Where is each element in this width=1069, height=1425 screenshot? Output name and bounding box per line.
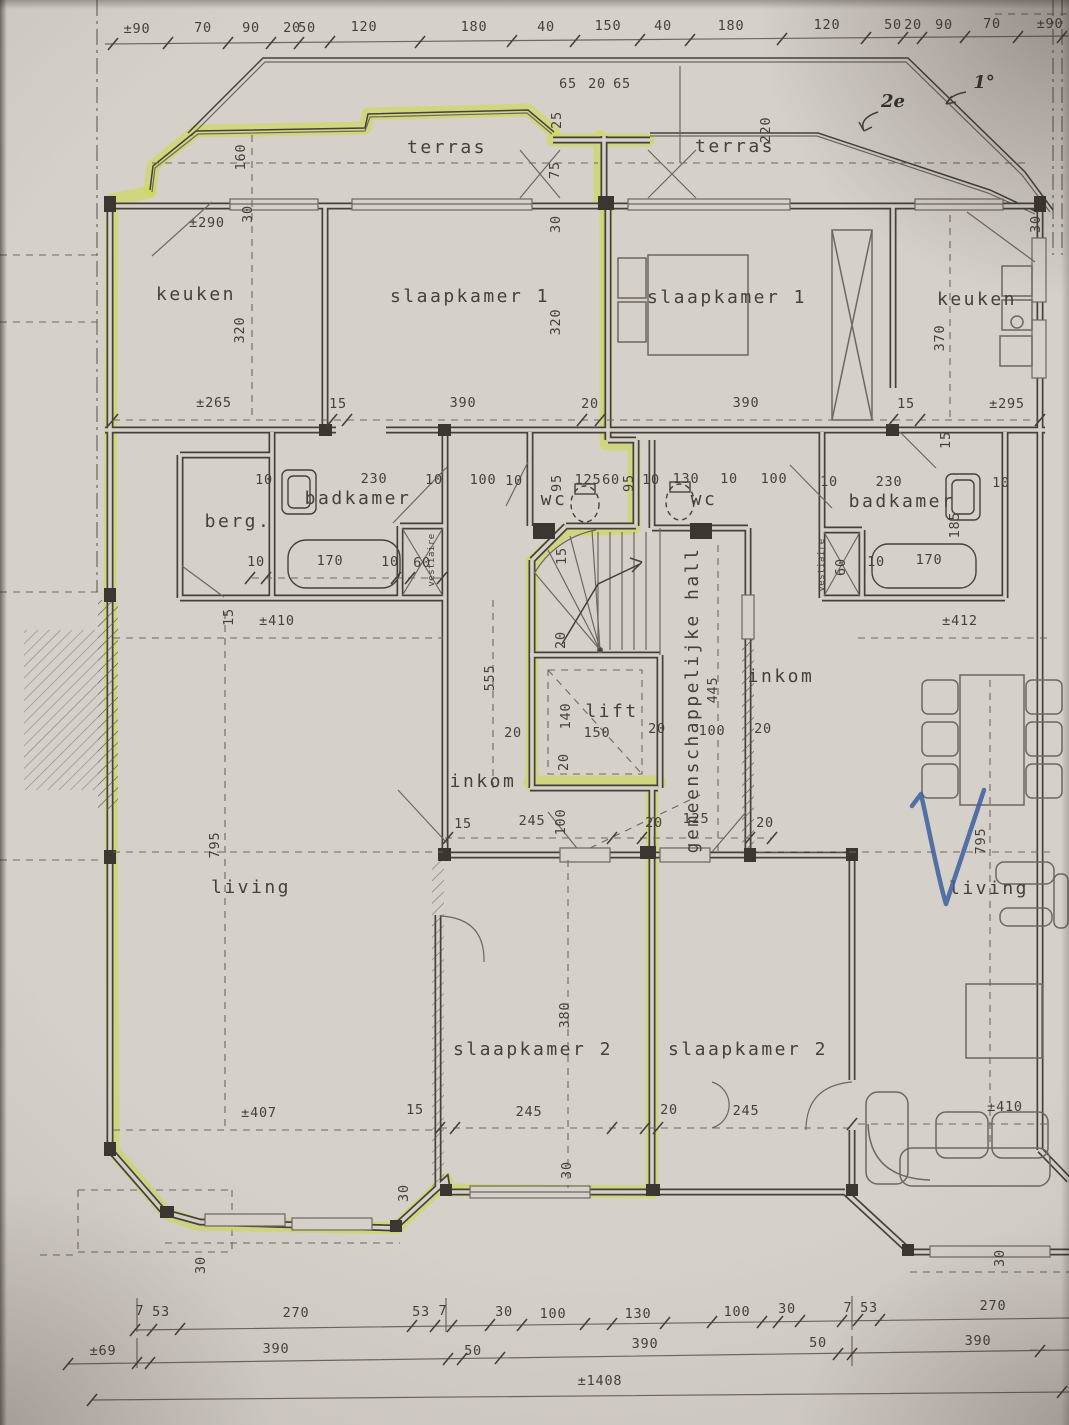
bottom-ruler-value: 130 (625, 1306, 652, 1322)
dimension-label: 390 (733, 395, 760, 411)
top-ruler-value: 90 (935, 17, 953, 33)
dimension-label: 30 (396, 1184, 412, 1202)
bottom-ruler-value: 30 (778, 1301, 796, 1317)
dimension-label: 795 (973, 828, 989, 855)
room-label: badkamer (849, 491, 956, 512)
scanned-floor-plan-photo: terrasterraskeukenslaapkamer 1slaapkamer… (0, 0, 1069, 1425)
room-label: slaapkamer 2 (668, 1039, 828, 1060)
dimension-label: 10 (425, 472, 443, 488)
dimension-label: 60 (833, 558, 849, 576)
room-label: vestiaire (817, 538, 827, 591)
coffee-table (966, 984, 1042, 1058)
top-ruler-value: ±90 (124, 21, 151, 37)
dimension-label: 60 (413, 555, 431, 571)
dimension-label: 65 (559, 76, 577, 92)
dimension-label: 15 (554, 547, 570, 565)
dimension-label: 30 (1028, 215, 1044, 233)
room-label: slaapkamer 1 (390, 286, 550, 307)
dimension-label: 20 (581, 396, 599, 412)
dimension-label: 15 (329, 396, 347, 412)
dimension-label: 30 (559, 1161, 575, 1179)
dimension-label: 10 (720, 471, 738, 487)
top-ruler-value: 180 (718, 18, 745, 34)
dimension-label: 20 (588, 76, 606, 92)
dimension-label: 15 (938, 431, 954, 449)
wardrobe (832, 230, 872, 420)
dimension-label: 320 (232, 317, 248, 344)
wall-piers (104, 196, 1046, 1256)
dimension-label: 10 (867, 554, 885, 570)
dimension-label: 15 (454, 816, 472, 832)
room-label: gemeenschappelijke hall (682, 547, 703, 854)
top-ruler-layer: ±9070902050120180401504018012050209070±9… (124, 16, 1064, 37)
dimension-label: 320 (548, 309, 564, 336)
top-ruler-value: 20 (904, 17, 922, 33)
top-ruler-value: 70 (194, 20, 212, 36)
top-ruler-value: 180 (461, 19, 488, 35)
dimension-label: 10 (820, 474, 838, 490)
room-label: berg. (205, 511, 272, 532)
top-ruler-value: 90 (242, 20, 260, 36)
dimension-labels-layer: 6520652575160220±290320303203037030±2651… (189, 76, 1044, 1274)
room-label: keuken (156, 284, 236, 305)
staircase (534, 528, 700, 848)
kitchen-counter (1000, 266, 1032, 366)
top-ruler-value: 40 (537, 19, 555, 35)
dimension-label: ±412 (942, 613, 978, 629)
bottom-ruler-value: 390 (632, 1336, 659, 1352)
dimension-label: 15 (221, 608, 237, 626)
top-ruler-value: 120 (814, 17, 841, 33)
dimension-label: 390 (450, 395, 477, 411)
dimension-label: 230 (361, 471, 388, 487)
dimension-label: 30 (240, 205, 256, 223)
dimension-label: 125 (575, 472, 602, 488)
dimension-label: 30 (992, 1249, 1008, 1267)
dimension-label: 30 (548, 215, 564, 233)
dimension-label: 20 (504, 725, 522, 741)
room-label: keuken (937, 289, 1017, 310)
dimension-label: 100 (761, 471, 788, 487)
dimension-label: 25 (549, 111, 565, 129)
dimension-label: 75 (547, 161, 563, 179)
bottom-ruler-layer: 7532705373010013010030753270±69390503905… (90, 1298, 1007, 1389)
dimension-label: 10 (255, 472, 273, 488)
dimension-label: 95 (621, 474, 637, 492)
dimension-label: ±410 (259, 613, 295, 629)
dimension-label: 15 (897, 396, 915, 412)
dimension-label: 30 (193, 1256, 209, 1274)
dimension-label: 170 (317, 553, 344, 569)
dimension-label: 10 (381, 554, 399, 570)
dimension-label: 150 (584, 725, 611, 741)
bottom-ruler-value: ±1408 (578, 1373, 623, 1389)
dimension-label: 20 (556, 753, 572, 771)
bottom-ruler-value: 53 (412, 1304, 430, 1320)
room-label: inkom (450, 771, 517, 792)
top-ruler-value: 120 (351, 19, 378, 35)
dimension-label: 220 (758, 117, 774, 144)
dimension-label: 15 (406, 1102, 424, 1118)
dimension-label: ±290 (189, 215, 225, 231)
bottom-ruler-value: 53 (152, 1304, 170, 1320)
room-label: terras (407, 137, 487, 158)
bottom-ruler-value: 30 (495, 1304, 513, 1320)
dimension-label: ±410 (987, 1099, 1023, 1115)
dimension-label: 20 (553, 631, 569, 649)
dimension-label: 10 (642, 472, 660, 488)
walls (105, 136, 1069, 1252)
dimension-label: 20 (648, 721, 666, 737)
dimension-label: 20 (756, 815, 774, 831)
room-label: slaapkamer 1 (647, 287, 807, 308)
room-label: living (211, 877, 291, 898)
dimension-label: 170 (916, 552, 943, 568)
top-ruler-value: 50 (298, 20, 316, 36)
handwritten-floor-note: 1° (973, 72, 995, 93)
dimension-label: 20 (660, 1102, 678, 1118)
dimension-label: 230 (876, 474, 903, 490)
dimension-label: 245 (516, 1104, 543, 1120)
dimension-label: 20 (754, 721, 772, 737)
dimension-label: 370 (932, 325, 948, 352)
bottom-ruler-value: 53 (860, 1300, 878, 1316)
dimension-label: 445 (705, 677, 721, 704)
room-label: inkom (748, 666, 815, 687)
room-label: slaapkamer 2 (453, 1039, 613, 1060)
room-label: living (949, 878, 1029, 899)
top-ruler-value: 50 (884, 17, 902, 33)
bottom-ruler-value: ±69 (90, 1343, 117, 1359)
door-swings (152, 202, 1035, 1130)
room-label: badkamer (305, 488, 412, 509)
dimension-label: 555 (482, 665, 498, 692)
dimension-label: 100 (470, 472, 497, 488)
bottom-ruler-value: 390 (263, 1341, 290, 1357)
bottom-ruler-value: 270 (980, 1298, 1007, 1314)
dimension-label: 100 (553, 809, 569, 836)
top-ruler-value: 40 (654, 18, 672, 34)
dimension-label: 60 (602, 472, 620, 488)
bottom-ruler-value: 270 (283, 1305, 310, 1321)
dimension-label: 160 (233, 144, 249, 171)
bottom-ruler-value: 390 (965, 1333, 992, 1349)
windows (205, 199, 1050, 1257)
dimension-label: 100 (699, 723, 726, 739)
dimension-label: 245 (733, 1103, 760, 1119)
bottom-ruler-value: 100 (540, 1306, 567, 1322)
dimension-label: 20 (645, 815, 663, 831)
yellow-highlighter-trace (110, 110, 660, 1228)
dimension-label: 185 (947, 512, 963, 539)
dimension-label: 10 (505, 473, 523, 489)
top-ruler-value: 150 (595, 18, 622, 34)
top-ruler-value: 70 (983, 16, 1001, 32)
top-ruler-value: ±90 (1037, 16, 1064, 32)
bottom-ruler-value: 50 (464, 1343, 482, 1359)
dimension-label: ±265 (196, 395, 232, 411)
dimension-label: ±295 (989, 396, 1025, 412)
dimension-label: 125 (683, 811, 710, 827)
wall-hatching (24, 598, 754, 1188)
bottom-ruler-value: 7 (136, 1303, 145, 1319)
room-label: lift (585, 701, 638, 722)
floor-plan-drawing: terrasterraskeukenslaapkamer 1slaapkamer… (0, 0, 1069, 1425)
dimension-label: 795 (207, 832, 223, 859)
dimension-label: 65 (613, 76, 631, 92)
bottom-ruler-value: 7 (844, 1300, 853, 1316)
dimension-label: 245 (519, 813, 546, 829)
bottom-ruler-value: 100 (724, 1304, 751, 1320)
bottom-ruler-value: 7 (439, 1303, 448, 1319)
dimension-label: 140 (558, 703, 574, 730)
dimension-label: 95 (549, 474, 565, 492)
dimension-label: 10 (992, 475, 1010, 491)
handwritten-floor-note: 2e (880, 91, 905, 112)
bottom-ruler-value: 50 (809, 1335, 827, 1351)
dimension-label: ±407 (241, 1105, 277, 1121)
dimension-label: 10 (247, 554, 265, 570)
arrow-to-second-floor (859, 112, 878, 131)
dimension-label: 130 (673, 471, 700, 487)
room-label: wc (691, 489, 718, 510)
dimension-label: 380 (557, 1002, 573, 1029)
